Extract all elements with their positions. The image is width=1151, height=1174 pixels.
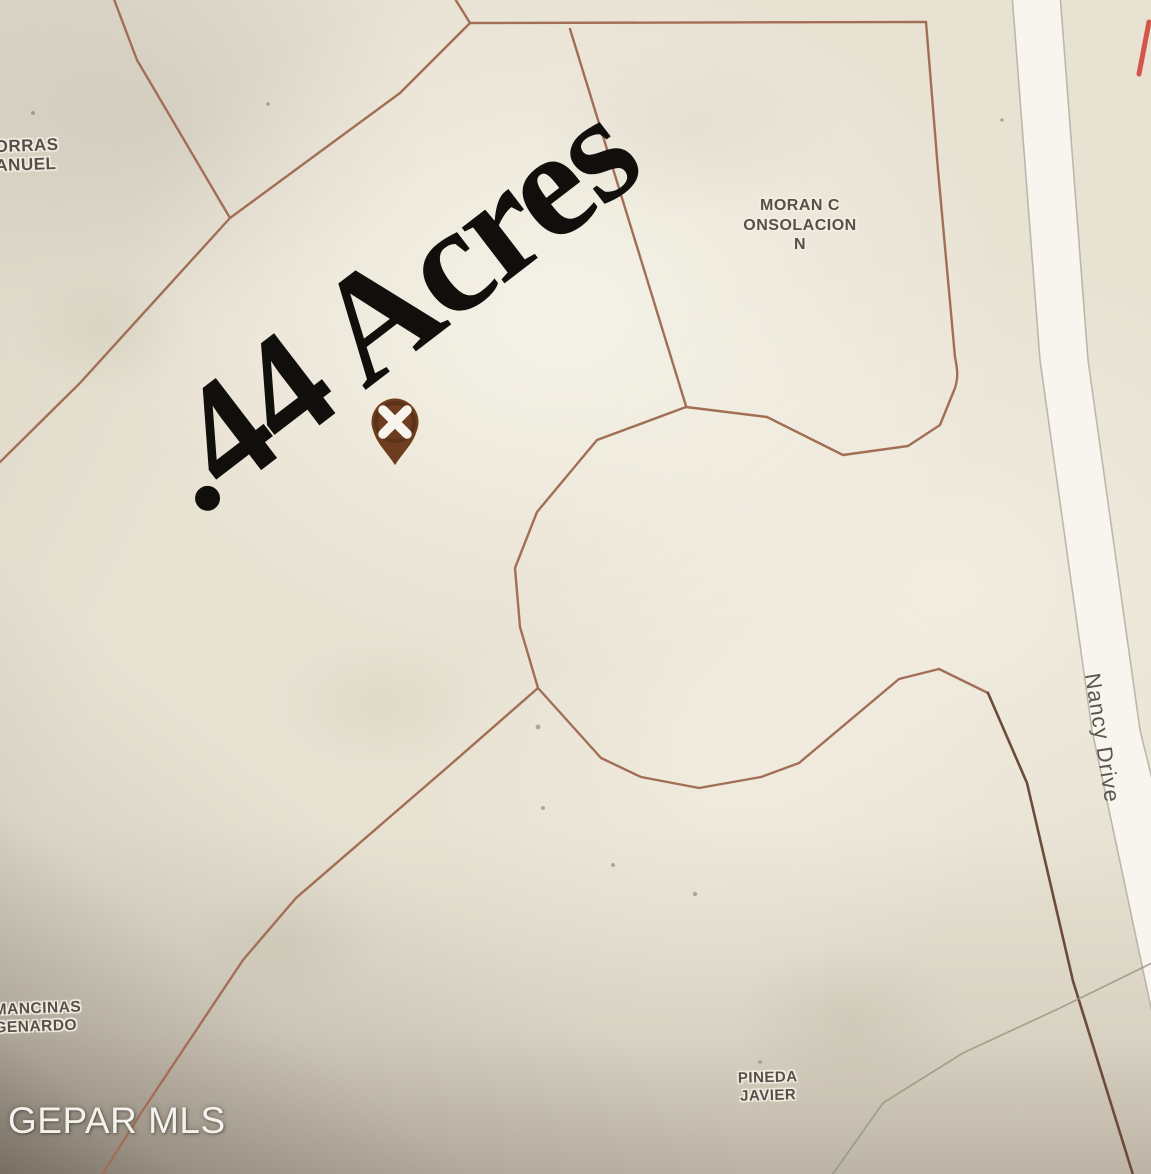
- parcel-label-line: PINEDA: [738, 1068, 798, 1088]
- parcel-label-mancinas: MANCINAS GENARDO: [0, 998, 82, 1036]
- faint-boundary: [830, 962, 1151, 1174]
- parcel-label-pineda: PINEDA JAVIER: [738, 1068, 799, 1106]
- parcel-label-moran: MORAN C ONSOLACION N: [743, 196, 856, 255]
- parcel-label-line: GENARDO: [0, 1016, 82, 1037]
- parcel-label-line: N: [743, 235, 856, 255]
- parcel-label-line: ONSOLACION: [743, 216, 856, 236]
- parcel-label-line: MORAN C: [743, 196, 856, 216]
- parcel-label-line: ANUEL: [0, 154, 60, 175]
- parcel-label-line: ORRAS: [0, 135, 59, 156]
- mls-watermark: GEPAR MLS: [8, 1100, 226, 1142]
- x-pin-marker-icon[interactable]: [365, 392, 425, 472]
- parcel-label-line: JAVIER: [738, 1086, 798, 1106]
- road-surface: [1012, 0, 1151, 1022]
- map-canvas[interactable]: ORRAS ANUEL MORAN C ONSOLACION N MANCINA…: [0, 0, 1151, 1174]
- red-edge-mark: [1139, 22, 1149, 74]
- parcel-label-porras: ORRAS ANUEL: [0, 135, 60, 175]
